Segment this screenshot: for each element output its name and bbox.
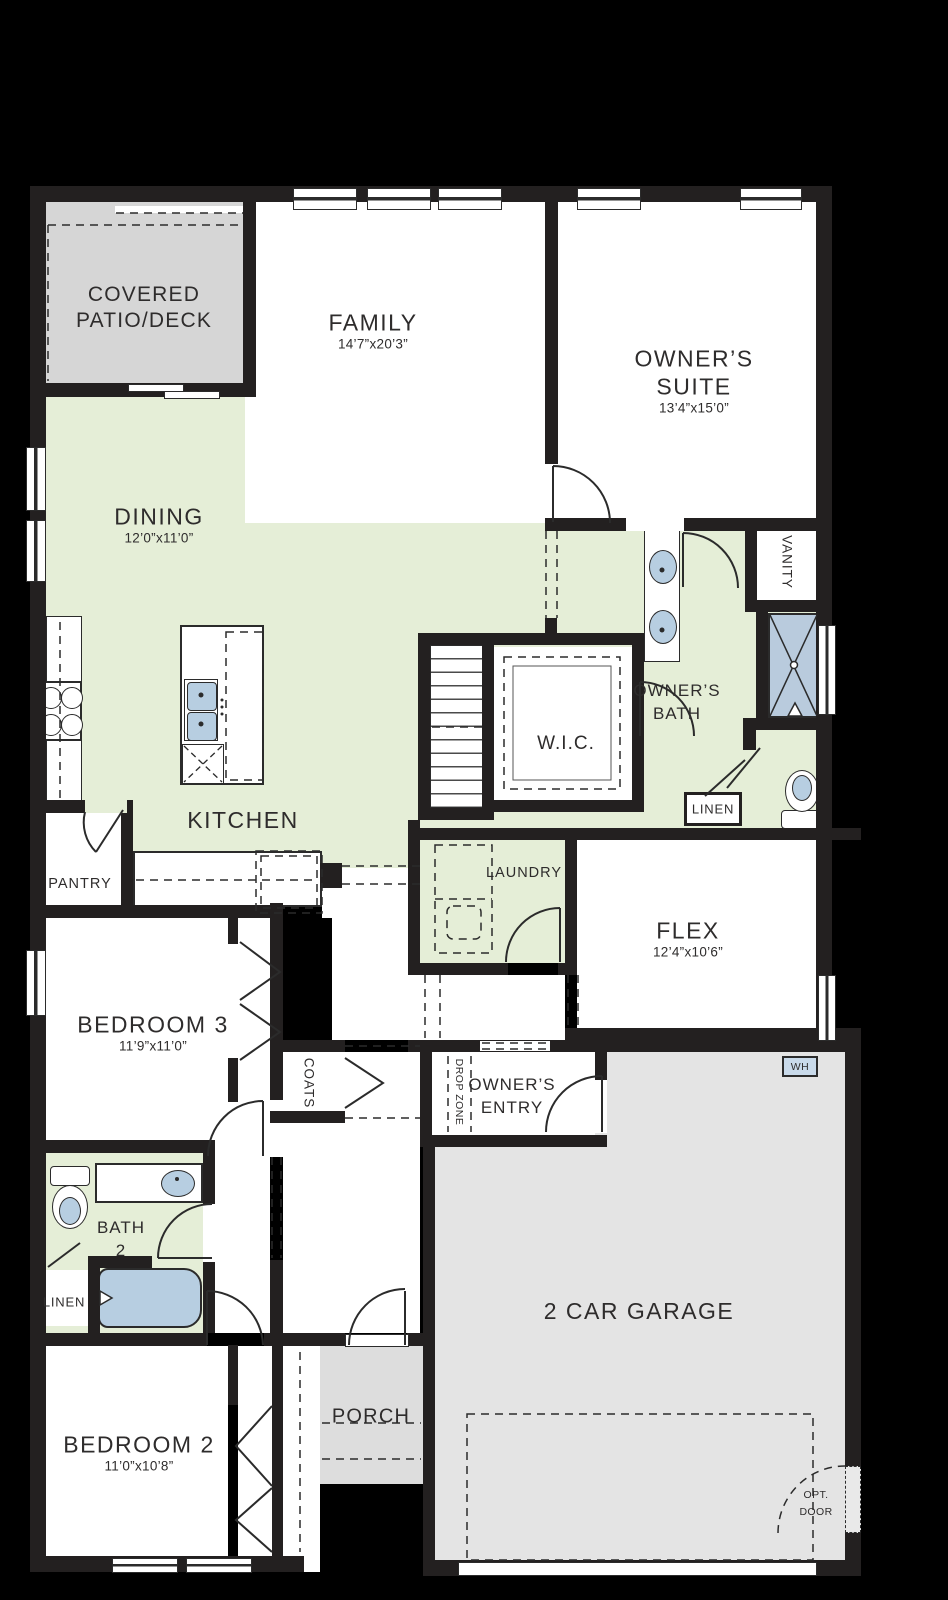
wall bbox=[203, 1262, 215, 1333]
sink-basin bbox=[187, 712, 217, 741]
coats-name: COATS bbox=[302, 1058, 317, 1109]
burner bbox=[61, 714, 83, 736]
wall bbox=[88, 1256, 100, 1333]
bathtub bbox=[98, 1268, 202, 1328]
shower bbox=[768, 613, 820, 718]
wall bbox=[270, 1260, 283, 1333]
wall bbox=[270, 903, 283, 1100]
wall bbox=[408, 828, 577, 840]
family-name: FAMILY bbox=[328, 309, 417, 337]
toilet-bowl-inner bbox=[59, 1197, 81, 1225]
wall bbox=[243, 196, 256, 397]
wall bbox=[756, 601, 768, 730]
optional-door-label: OPT. DOOR bbox=[799, 1487, 832, 1521]
window bbox=[26, 950, 46, 1016]
bedroom3-dims: 11’9”x11’0” bbox=[77, 1039, 229, 1054]
drop-zone-name: DROP ZONE bbox=[453, 1059, 465, 1126]
wall bbox=[30, 905, 283, 918]
toilet-bowl-inner bbox=[792, 775, 812, 801]
flex-name: FLEX bbox=[653, 917, 723, 945]
window bbox=[438, 188, 502, 210]
wall bbox=[418, 633, 430, 820]
bath2-sink bbox=[161, 1170, 195, 1197]
wall bbox=[270, 1111, 345, 1123]
wic-area bbox=[494, 647, 632, 800]
vanity-name: VANITY bbox=[780, 535, 795, 589]
sliding-door-panel bbox=[164, 391, 220, 399]
wall bbox=[545, 196, 558, 464]
owners-entry-line2: ENTRY bbox=[468, 1096, 555, 1119]
water-heater-name: WH bbox=[791, 1061, 810, 1073]
wall bbox=[745, 518, 757, 612]
wall bbox=[816, 186, 832, 1040]
water-heater-label: WH bbox=[791, 1061, 810, 1073]
wall bbox=[565, 828, 577, 975]
wall bbox=[603, 1040, 861, 1052]
wic-name: W.I.C. bbox=[537, 733, 595, 754]
garage-door bbox=[458, 1562, 817, 1576]
laundry-area bbox=[420, 840, 565, 963]
dishwasher bbox=[182, 744, 224, 784]
owners-bath-line2: BATH bbox=[633, 702, 720, 725]
window bbox=[818, 975, 836, 1041]
window bbox=[577, 188, 641, 210]
optional-door-line2: DOOR bbox=[799, 1504, 832, 1521]
bedroom2-dims: 11’0”x10’8” bbox=[63, 1459, 215, 1474]
floor-plan: COVERED PATIO/DECK FAMILY 14’7”x20’3” OW… bbox=[0, 0, 948, 1600]
wall bbox=[320, 863, 342, 888]
wall bbox=[272, 1345, 283, 1556]
dining-dims: 12’0”x11’0” bbox=[114, 531, 204, 546]
wic-label: W.I.C. bbox=[537, 733, 595, 755]
window bbox=[740, 188, 802, 210]
owners-suite-dims: 13’4”x15’0” bbox=[634, 401, 753, 416]
bedroom2-name: BEDROOM 2 bbox=[63, 1431, 215, 1459]
wall bbox=[756, 718, 832, 730]
pantry-label: PANTRY bbox=[48, 876, 111, 892]
linen-owner-name: LINEN bbox=[692, 802, 734, 817]
bath2-line1: BATH bbox=[97, 1216, 145, 1239]
window bbox=[26, 447, 46, 511]
hall-area bbox=[408, 975, 565, 1040]
patio-label-line2: PATIO/DECK bbox=[76, 308, 212, 334]
garage-label: 2 CAR GARAGE bbox=[544, 1297, 735, 1325]
vanity-label: VANITY bbox=[780, 535, 795, 589]
linen-bath2-name: LINEN bbox=[43, 1295, 85, 1310]
flex-dims: 12’4”x10’6” bbox=[653, 945, 723, 960]
wall bbox=[30, 1333, 207, 1346]
wall bbox=[420, 1040, 432, 1147]
owners-bath-label: OWNER’S BATH bbox=[633, 679, 720, 725]
laundry-name: LAUNDRY bbox=[486, 865, 562, 881]
wall bbox=[482, 800, 644, 812]
dining-name: DINING bbox=[114, 503, 204, 531]
owners-suite-line1: OWNER’S bbox=[634, 345, 753, 373]
bath-sink bbox=[649, 610, 677, 644]
owners-suite-label: OWNER’S SUITE 13’4”x15’0” bbox=[634, 345, 753, 416]
bath2-door-opening bbox=[203, 1204, 215, 1262]
front-door-threshold bbox=[345, 1334, 409, 1347]
coats-label: COATS bbox=[302, 1058, 317, 1109]
owners-suite-line2: SUITE bbox=[634, 373, 753, 401]
wall bbox=[418, 808, 494, 820]
wall bbox=[420, 1135, 607, 1147]
owners-bath-line1: OWNER’S bbox=[633, 679, 720, 702]
dining-label: DINING 12’0”x11’0” bbox=[114, 503, 204, 546]
wall bbox=[270, 1040, 345, 1052]
wall bbox=[482, 633, 494, 820]
hall-area bbox=[215, 1140, 270, 1333]
pantry-name: PANTRY bbox=[48, 876, 111, 892]
kitchen-counter bbox=[133, 851, 322, 907]
wall bbox=[407, 1333, 435, 1346]
optional-door-line1: OPT. bbox=[799, 1487, 832, 1504]
wall bbox=[121, 813, 133, 905]
bedroom2-closet-area bbox=[238, 1346, 272, 1556]
porch-name: PORCH bbox=[332, 1406, 410, 1428]
bedroom3-door-opening bbox=[270, 1100, 283, 1157]
owners-entry-label: OWNER’S ENTRY bbox=[468, 1073, 555, 1119]
patio-roof-edge bbox=[115, 206, 243, 213]
laundry-label: LAUNDRY bbox=[486, 865, 562, 881]
bath2-line2: 2 bbox=[97, 1239, 145, 1262]
window bbox=[367, 188, 431, 210]
owners-entry-line1: OWNER’S bbox=[468, 1073, 555, 1096]
patio-label: COVERED PATIO/DECK bbox=[76, 282, 212, 334]
entry-door-opening bbox=[595, 1076, 607, 1133]
wall bbox=[408, 820, 420, 975]
window bbox=[186, 1558, 252, 1573]
door-opening bbox=[626, 518, 684, 531]
hall-area bbox=[332, 918, 408, 1040]
flex-label: FLEX 12’4”x10’6” bbox=[653, 917, 723, 960]
wall bbox=[565, 828, 861, 840]
patio-label-line1: COVERED bbox=[76, 282, 212, 308]
wall bbox=[30, 1140, 215, 1153]
wall bbox=[423, 1147, 435, 1560]
bedroom2-label: BEDROOM 2 11’0”x10’8” bbox=[63, 1431, 215, 1474]
wall bbox=[127, 800, 133, 813]
toilet-tank bbox=[50, 1166, 90, 1186]
side-strip-area bbox=[283, 1346, 320, 1572]
sink-basin bbox=[187, 682, 217, 711]
window bbox=[26, 520, 46, 582]
family-room-area bbox=[245, 196, 545, 523]
linen-owner-label: LINEN bbox=[692, 802, 734, 817]
garage-name: 2 CAR GARAGE bbox=[544, 1298, 735, 1324]
linen-bath2-label: LINEN bbox=[43, 1295, 85, 1310]
wall bbox=[203, 1140, 215, 1204]
kitchen-label: KITCHEN bbox=[187, 806, 298, 834]
wall bbox=[558, 963, 577, 975]
optional-door-opening bbox=[845, 1466, 861, 1533]
wall bbox=[595, 1040, 607, 1080]
bedroom3-label: BEDROOM 3 11’9”x11’0” bbox=[77, 1011, 229, 1054]
wall bbox=[418, 633, 644, 645]
window bbox=[818, 625, 836, 715]
family-dims: 14’7”x20’3” bbox=[328, 337, 417, 352]
kitchen-name: KITCHEN bbox=[187, 807, 298, 833]
wall bbox=[228, 918, 238, 944]
wall bbox=[228, 1058, 238, 1102]
wall bbox=[408, 963, 508, 975]
bath2-label: BATH 2 bbox=[97, 1216, 145, 1262]
wall bbox=[30, 800, 85, 813]
wall bbox=[545, 518, 830, 531]
cased-opening bbox=[480, 1041, 550, 1051]
bath-sink bbox=[649, 550, 677, 584]
family-label: FAMILY 14’7”x20’3” bbox=[328, 309, 417, 352]
hall-opening bbox=[272, 1157, 281, 1258]
wall bbox=[228, 1345, 238, 1405]
drop-zone-label: DROP ZONE bbox=[453, 1059, 465, 1126]
bedroom3-name: BEDROOM 3 bbox=[77, 1011, 229, 1039]
porch-label: PORCH bbox=[332, 1406, 410, 1429]
burner bbox=[61, 687, 83, 709]
wall bbox=[743, 718, 756, 750]
staircase bbox=[430, 645, 487, 808]
window bbox=[293, 188, 357, 210]
window bbox=[112, 1558, 178, 1573]
